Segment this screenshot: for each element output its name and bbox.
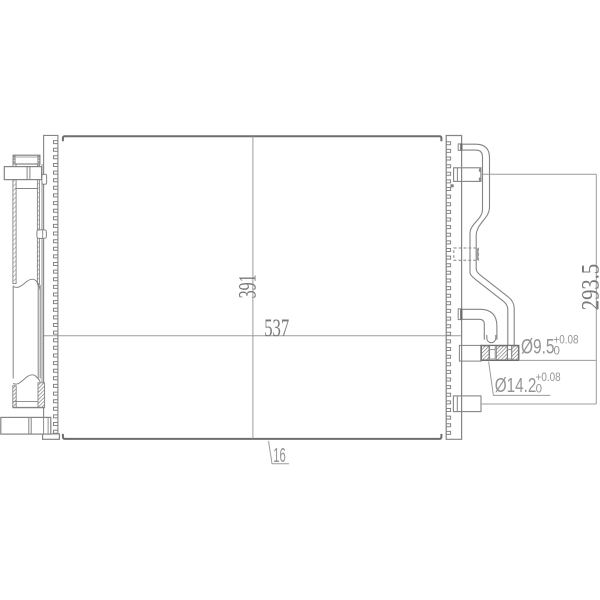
svg-text:Ø14.2: Ø14.2: [495, 375, 537, 397]
svg-text:0: 0: [554, 346, 560, 358]
svg-text:537: 537: [264, 315, 289, 342]
svg-text:391: 391: [234, 274, 261, 298]
svg-text:16: 16: [273, 445, 286, 467]
svg-text:+0.08: +0.08: [536, 372, 561, 384]
svg-text:0: 0: [536, 383, 542, 395]
svg-text:Ø9.5: Ø9.5: [521, 335, 555, 358]
svg-text:293.5: 293.5: [578, 264, 600, 311]
